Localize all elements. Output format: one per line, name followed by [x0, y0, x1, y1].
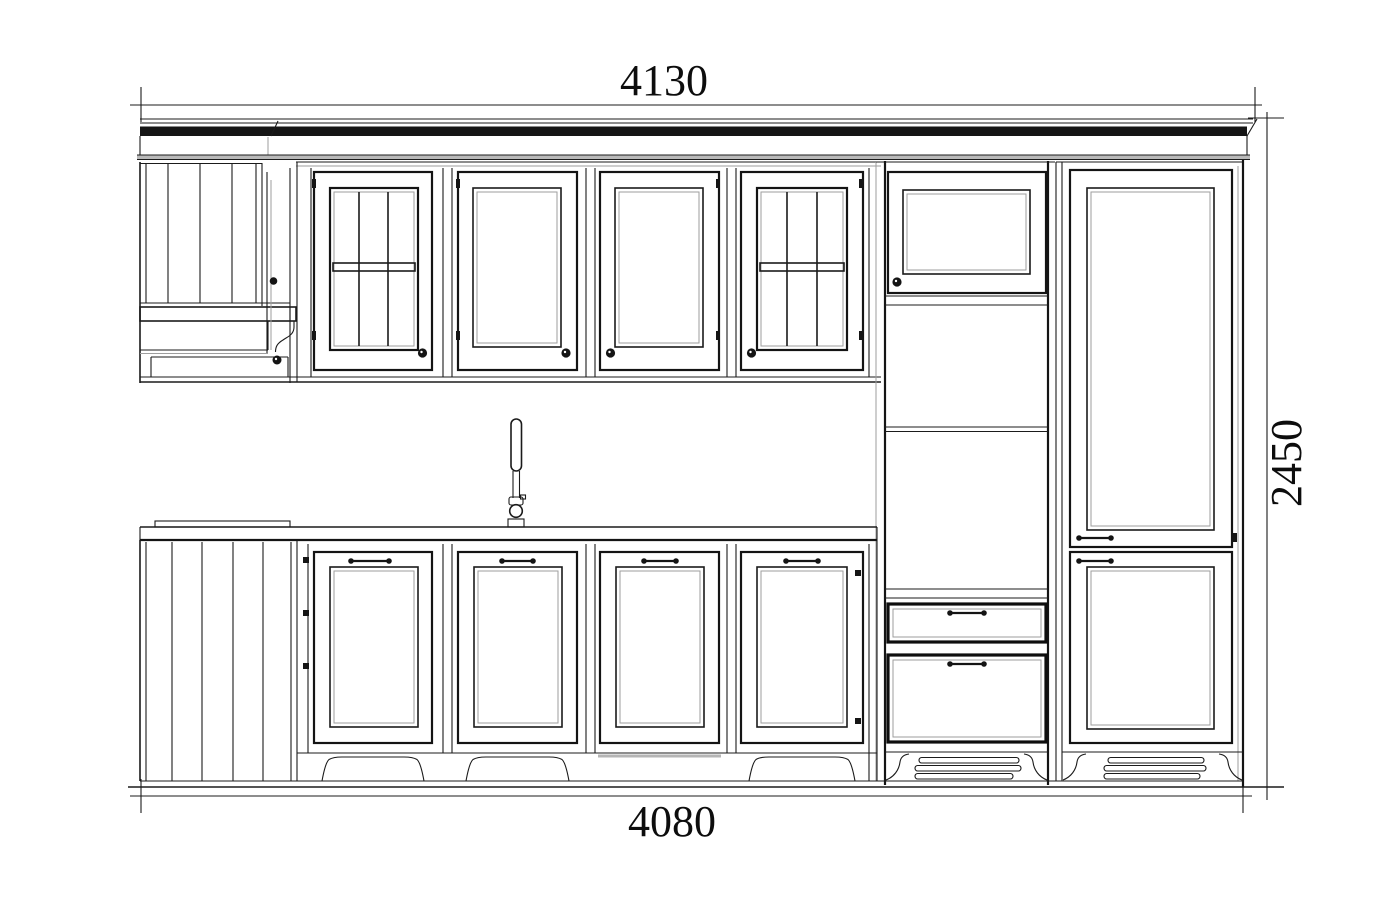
- appliance-column: [876, 161, 1055, 785]
- left-slat-panel: [140, 540, 297, 781]
- dimension-top-width: 4130: [130, 56, 1262, 122]
- hinge-mark: [303, 610, 309, 616]
- tall-unit-stile: [1056, 162, 1062, 781]
- plinth-vent-grille: [1104, 758, 1206, 780]
- hood-rail-knob: [273, 356, 282, 365]
- upper-door-1-knob: [418, 348, 427, 357]
- upper-cabinets: [140, 162, 881, 382]
- upper-door-4-knob: [747, 348, 756, 357]
- base-door-1: [303, 552, 432, 743]
- upper-door-1-glass: [312, 172, 432, 370]
- shelf-corbel: [276, 321, 295, 352]
- plinth-arch: [749, 757, 855, 781]
- hinge-mark: [855, 570, 861, 576]
- hinge-mark: [855, 718, 861, 724]
- dimension-bottom-width: 4080: [130, 779, 1252, 846]
- bottom-width-label: 4080: [628, 797, 716, 846]
- hinge-mark: [456, 331, 460, 340]
- hinge-mark: [303, 557, 309, 563]
- base-door-4: [741, 552, 863, 743]
- hinge-mark: [456, 179, 460, 188]
- base-door-2: [458, 552, 577, 743]
- fridge-column: [1056, 160, 1243, 787]
- top-width-label: 4130: [620, 56, 708, 105]
- upper-door-2-knob: [561, 348, 570, 357]
- dimension-height: 2450: [1244, 112, 1311, 800]
- filler-door-knob: [270, 277, 278, 285]
- appliance-small-drawer: [888, 604, 1046, 642]
- upper-door-4-glass: [741, 172, 863, 370]
- range-hood: [140, 162, 296, 383]
- base-cabinets: [140, 540, 877, 781]
- hinge-mark: [312, 179, 316, 188]
- hinge-mark: [716, 331, 720, 340]
- fridge-lower-door: [1070, 552, 1232, 743]
- hinge-mark: [312, 331, 316, 340]
- appliance-top-door: [888, 172, 1046, 293]
- plinth-arch: [466, 757, 569, 781]
- appliance-top-door-knob: [892, 277, 901, 286]
- upper-door-2-panel: [456, 172, 577, 370]
- hinge-mark: [859, 179, 863, 188]
- hinge-mark: [859, 331, 863, 340]
- floor-lines: [128, 781, 1284, 787]
- base-door-3: [600, 552, 719, 743]
- plain-plinth: [598, 755, 721, 758]
- plinth-arch: [322, 757, 424, 781]
- crown-molding: [137, 119, 1257, 160]
- hinge-mark: [303, 663, 309, 669]
- hinge-mark: [1233, 533, 1237, 542]
- appliance-big-drawer: [888, 655, 1046, 742]
- upper-door-3-panel: [600, 172, 720, 370]
- elevation-svg: 4130 2450 4080: [0, 0, 1400, 900]
- fridge-upper-door: [1070, 170, 1237, 547]
- kitchen-elevation-drawing: 4130 2450 4080: [0, 0, 1400, 900]
- plinth-vent-grille: [915, 758, 1021, 780]
- upper-door-3-knob: [606, 348, 615, 357]
- hinge-mark: [716, 179, 720, 188]
- kitchen-faucet: [508, 419, 526, 527]
- height-label: 2450: [1262, 419, 1311, 507]
